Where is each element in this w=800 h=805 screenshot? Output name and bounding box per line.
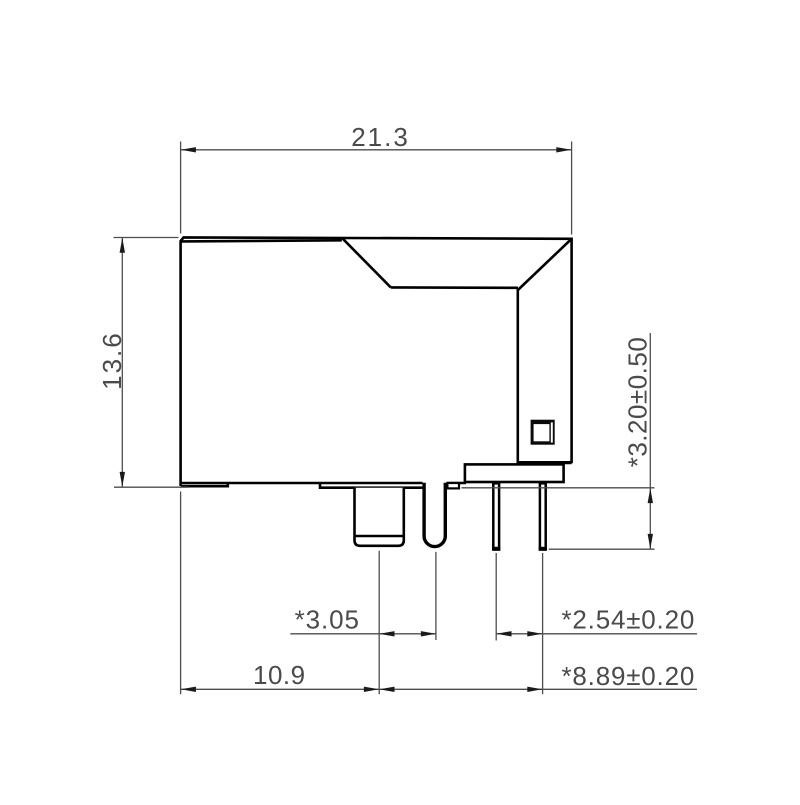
svg-text:21.3: 21.3 (351, 122, 410, 152)
svg-text:*3.05: *3.05 (295, 605, 360, 635)
svg-text:*3.20±0.50: *3.20±0.50 (623, 337, 653, 468)
svg-text:*8.89±0.20: *8.89±0.20 (562, 661, 696, 691)
svg-text:13.6: 13.6 (97, 331, 127, 390)
svg-text:*2.54±0.20: *2.54±0.20 (562, 605, 696, 635)
svg-text:10.9: 10.9 (253, 660, 306, 690)
